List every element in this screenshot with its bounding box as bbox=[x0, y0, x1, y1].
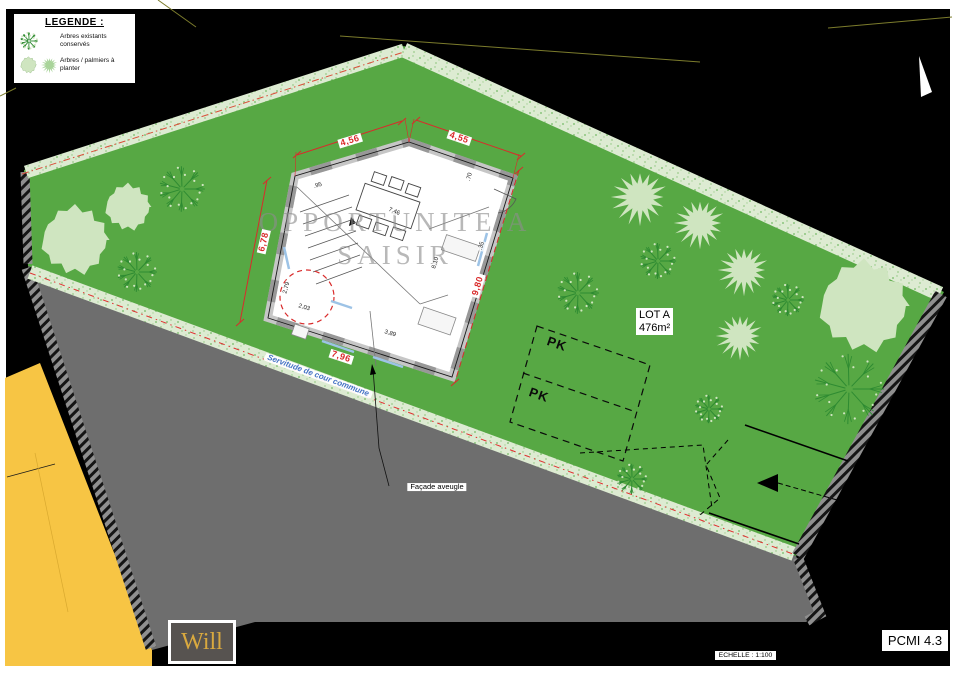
facade-label: Façade aveugle bbox=[407, 483, 466, 491]
legend-item-planted: Arbres / palmiers à planter bbox=[18, 54, 131, 76]
lot-area: 476m² bbox=[639, 322, 670, 335]
planted-tree-icon bbox=[18, 54, 60, 76]
legend-title: LEGENDE : bbox=[18, 17, 131, 28]
site-plan-page: LEGENDE : Arbres existants conservés Arb… bbox=[0, 0, 960, 678]
legend-item-label: Arbres existants conservés bbox=[60, 33, 131, 49]
logo-inner: Will bbox=[171, 623, 233, 661]
logo-text: Will bbox=[181, 629, 223, 656]
scale-box: ECHELLE : 1:100 bbox=[714, 650, 777, 661]
plan-drawing bbox=[0, 0, 960, 678]
legend-item-label: Arbres / palmiers à planter bbox=[60, 57, 130, 73]
legend-panel: LEGENDE : Arbres existants conservés Arb… bbox=[13, 13, 136, 84]
lot-name: LOT A bbox=[639, 309, 670, 322]
lot-label: LOT A 476m² bbox=[636, 308, 673, 335]
left-edge-hatch bbox=[25, 172, 28, 264]
existing-tree-icon bbox=[18, 30, 60, 52]
architect-logo: Will bbox=[168, 620, 236, 664]
sheet-number: PCMI 4.3 bbox=[882, 630, 948, 651]
legend-item-existing: Arbres existants conservés bbox=[18, 30, 131, 52]
